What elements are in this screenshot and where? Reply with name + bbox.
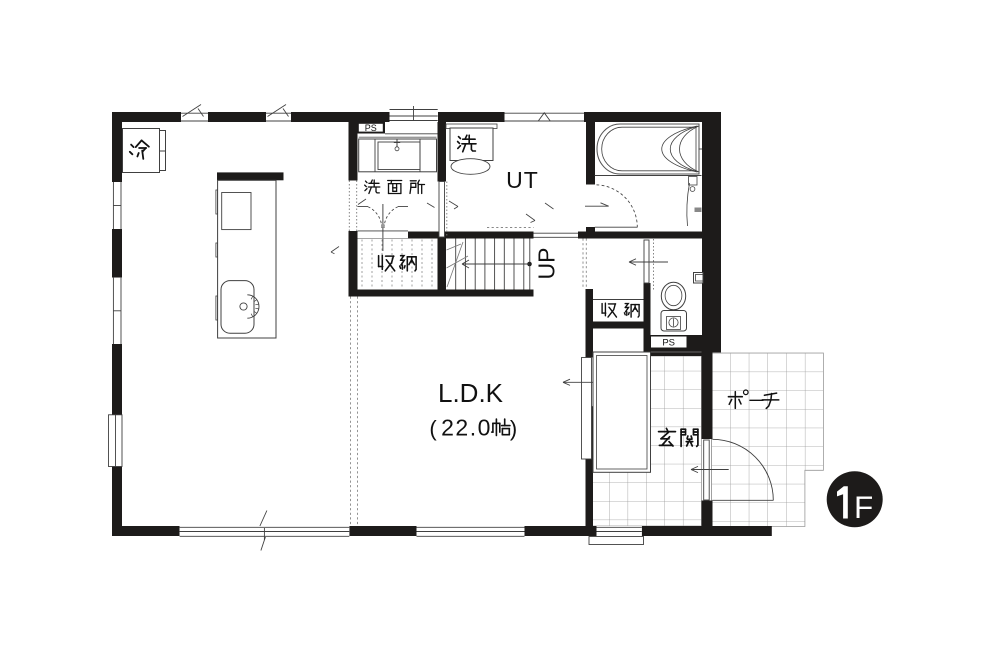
svg-text:UP: UP (534, 248, 560, 280)
svg-text:(: ( (429, 416, 437, 441)
svg-text:UT: UT (506, 167, 539, 193)
svg-text:PS: PS (662, 337, 675, 348)
svg-text:22.0: 22.0 (441, 415, 492, 441)
svg-text:L.D.K: L.D.K (438, 378, 504, 408)
svg-text:PS: PS (365, 123, 377, 133)
svg-text:): ) (510, 416, 517, 441)
svg-text:F: F (854, 489, 873, 525)
